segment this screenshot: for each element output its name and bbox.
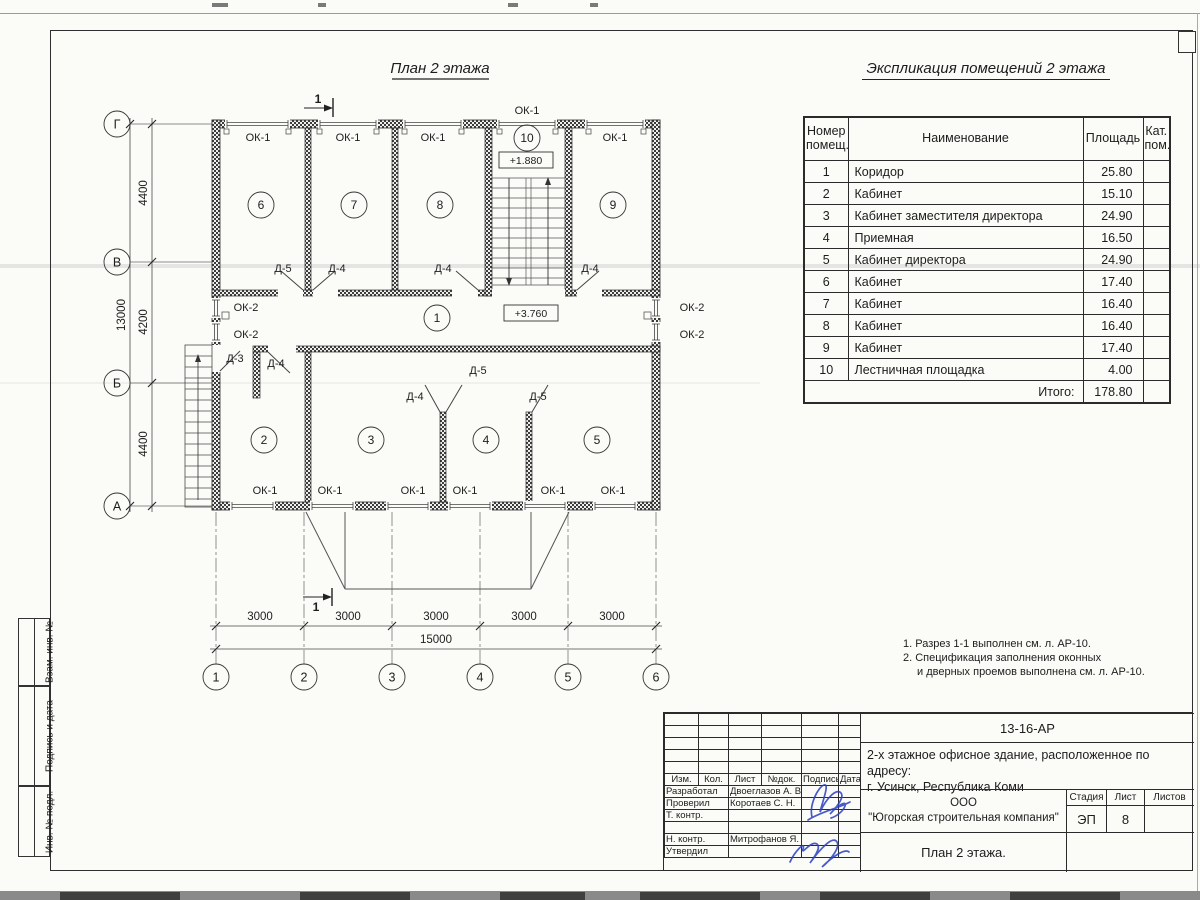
- cell-cat: [1143, 249, 1170, 271]
- cell-num: 4: [804, 227, 848, 249]
- room-number: 8: [437, 198, 444, 212]
- plan-label: ОК-1: [336, 132, 361, 144]
- note-line: 2. Спецификация заполнения оконных: [903, 651, 1145, 665]
- schedule-title-text: Экспликация помещений 2 этажа: [862, 60, 1109, 80]
- plan-label: ОК-1: [318, 485, 343, 497]
- room-number: 7: [351, 198, 358, 212]
- col-header-area: Площадь: [1083, 117, 1143, 161]
- signature-stroke: [790, 840, 849, 867]
- cell-name: Кабинет директора: [848, 249, 1083, 271]
- cell-area: 24.90: [1083, 249, 1143, 271]
- cell-name: Кабинет: [848, 183, 1083, 205]
- elevation-mark: +3.760: [515, 308, 548, 320]
- plan-label: ОК-1: [541, 485, 566, 497]
- scan-seg: [1010, 892, 1120, 900]
- col-header-number: Номер помещ.: [804, 117, 848, 161]
- floor-plan: План 2 этажа: [0, 0, 760, 700]
- cell-cat: [1143, 183, 1170, 205]
- room-number: 3: [368, 433, 375, 447]
- scan-seg: [820, 892, 930, 900]
- porch: [306, 512, 569, 589]
- stamp-inv: Инв. № подл.: [18, 786, 50, 857]
- dimension-label: 3000: [335, 611, 361, 623]
- table-row: 9Кабинет17.40: [804, 337, 1170, 359]
- plan-label: ОК-1: [421, 132, 446, 144]
- grid-col-label: 3: [389, 671, 396, 685]
- cell-num: 9: [804, 337, 848, 359]
- plan-label: Д-4: [328, 263, 345, 275]
- cell-cat: [1143, 205, 1170, 227]
- plan-label: ОК-1: [246, 132, 271, 144]
- room-number: 1: [434, 311, 441, 325]
- stamp-divider: [34, 787, 35, 856]
- external-stair: [185, 345, 212, 507]
- stamp-label-podpis: Подпись и дата: [45, 700, 56, 772]
- plan-label: Д-5: [274, 263, 291, 275]
- dimension-label: 15000: [420, 634, 452, 646]
- section-mark-label: 1: [313, 600, 320, 614]
- stairwell: [492, 177, 565, 286]
- cell-area: 16.40: [1083, 315, 1143, 337]
- cell-cat: [1143, 315, 1170, 337]
- cell-area: 4.00: [1083, 359, 1143, 381]
- room-schedule: Номер помещ. Наименование Площадь Кат. п…: [803, 116, 1171, 404]
- cell-name: Кабинет: [848, 271, 1083, 293]
- dimension-label: 3000: [599, 611, 625, 623]
- table-row: 6Кабинет17.40: [804, 271, 1170, 293]
- cell-area: 17.40: [1083, 271, 1143, 293]
- dimension-label: 3000: [247, 611, 273, 623]
- cell-area: 24.90: [1083, 205, 1143, 227]
- stamp-divider: [34, 687, 35, 785]
- plan-label: ОК-2: [680, 302, 705, 314]
- dimension-label: 4200: [138, 309, 150, 335]
- total-area: 178.80: [1083, 381, 1143, 404]
- cell-num: 8: [804, 315, 848, 337]
- plan-title: План 2 этажа: [390, 60, 489, 77]
- schedule-header-row: Номер помещ. Наименование Площадь Кат. п…: [804, 117, 1170, 161]
- dimension-label: 3000: [511, 611, 537, 623]
- grid-row-label: А: [113, 500, 122, 514]
- plan-label: Д-4: [406, 391, 423, 403]
- total-label: Итого:: [804, 381, 1083, 404]
- cell-cat: [1143, 227, 1170, 249]
- room-number: 4: [483, 433, 490, 447]
- scan-seg: [300, 892, 410, 900]
- scan-seg: [640, 892, 760, 900]
- stamp-divider: [34, 619, 35, 685]
- room-number: 6: [258, 198, 265, 212]
- cell-name: Кабинет: [848, 315, 1083, 337]
- cell-area: 25.80: [1083, 161, 1143, 183]
- cell-num: 1: [804, 161, 848, 183]
- plan-label: Д-4: [434, 263, 451, 275]
- cell-name: Приемная: [848, 227, 1083, 249]
- plan-label: Д-5: [529, 391, 546, 403]
- note-line: и дверных проемов выполнена см. л. АР-10…: [903, 665, 1145, 679]
- cell-name: Кабинет заместителя директора: [848, 205, 1083, 227]
- table-row: 10Лестничная площадка4.00: [804, 359, 1170, 381]
- grid-col-label: 1: [213, 671, 220, 685]
- plan-label: ОК-2: [234, 329, 259, 341]
- room-number: 10: [520, 131, 534, 145]
- cell-num: 5: [804, 249, 848, 271]
- note-line: 1. Разрез 1-1 выполнен см. л. АР-10.: [903, 637, 1145, 651]
- schedule-title: Экспликация помещений 2 этажа: [803, 60, 1169, 80]
- cell-cat: [1143, 337, 1170, 359]
- plan-label: ОК-1: [401, 485, 426, 497]
- signature-stroke: [808, 802, 850, 820]
- cell-num: 10: [804, 359, 848, 381]
- plan-label: ОК-2: [680, 329, 705, 341]
- plan-label: ОК-1: [601, 485, 626, 497]
- plan-label: ОК-2: [234, 302, 259, 314]
- grid-row-label: В: [113, 256, 121, 270]
- stamp-vzam: Взам. инв. №: [18, 618, 50, 686]
- signature-stroke: [811, 785, 845, 818]
- table-row: 5Кабинет директора24.90: [804, 249, 1170, 271]
- cell-num: 3: [804, 205, 848, 227]
- room-number: 5: [594, 433, 601, 447]
- table-row: 1Коридор25.80: [804, 161, 1170, 183]
- table-row: 3Кабинет заместителя директора24.90: [804, 205, 1170, 227]
- cell-name: Кабинет: [848, 293, 1083, 315]
- plan-label: Д-5: [469, 365, 486, 377]
- stamp-label-vzam: Взам. инв. №: [45, 621, 56, 683]
- col-header-cat: Кат. пом.: [1143, 117, 1170, 161]
- cell-area: 15.10: [1083, 183, 1143, 205]
- scan-seg: [500, 892, 585, 900]
- scan-seg: [60, 892, 180, 900]
- cell-num: 6: [804, 271, 848, 293]
- cell-name: Лестничная площадка: [848, 359, 1083, 381]
- grid-col-label: 2: [301, 671, 308, 685]
- cell-name: Кабинет: [848, 337, 1083, 359]
- elevation-mark: +1.880: [510, 155, 543, 167]
- table-row: 8Кабинет16.40: [804, 315, 1170, 337]
- cell-cat: [1143, 271, 1170, 293]
- dimension-label: 3000: [423, 611, 449, 623]
- table-row: 4Приемная16.50: [804, 227, 1170, 249]
- grid-col-label: 4: [477, 671, 484, 685]
- cell-area: 16.40: [1083, 293, 1143, 315]
- plan-label: ОК-1: [453, 485, 478, 497]
- plan-label: ОК-1: [603, 132, 628, 144]
- plan-label: ОК-1: [515, 105, 540, 117]
- cell-num: 7: [804, 293, 848, 315]
- grid-row-label: Г: [114, 118, 121, 132]
- plan-label: ОК-1: [253, 485, 278, 497]
- section-mark-label: 1: [315, 92, 322, 106]
- schedule-total-row: Итого: 178.80: [804, 381, 1170, 404]
- stamp-podpis: Подпись и дата: [18, 686, 50, 786]
- table-row: 2Кабинет15.10: [804, 183, 1170, 205]
- drawing-sheet: План 2 этажа: [0, 0, 1200, 900]
- dimension-label: 13000: [116, 299, 128, 331]
- cell-cat: [1143, 161, 1170, 183]
- plan-label: Д-4: [581, 263, 598, 275]
- stamp-label-inv: Инв. № подл.: [45, 790, 56, 852]
- title-block: Изм. Кол. Лист №док. Подпись Дата Разраб…: [663, 712, 1193, 871]
- col-header-name: Наименование: [848, 117, 1083, 161]
- cell-name: Коридор: [848, 161, 1083, 183]
- cell-cat: [1143, 359, 1170, 381]
- grid-col-label: 5: [565, 671, 572, 685]
- signatures: [664, 713, 1194, 872]
- plan-label: Д-3: [226, 353, 243, 365]
- scan-edge-right: [1197, 13, 1198, 891]
- room-number: 9: [610, 198, 617, 212]
- room-number: 2: [261, 433, 268, 447]
- notes: 1. Разрез 1-1 выполнен см. л. АР-10. 2. …: [903, 637, 1145, 679]
- dimension-label: 4400: [138, 431, 150, 457]
- dimension-label: 4400: [138, 180, 150, 206]
- cell-area: 16.50: [1083, 227, 1143, 249]
- format-box: [1178, 31, 1196, 53]
- cell-num: 2: [804, 183, 848, 205]
- grid-row-label: Б: [113, 377, 121, 391]
- cell-cat: [1143, 293, 1170, 315]
- total-cat-cell: [1143, 381, 1170, 404]
- cell-area: 17.40: [1083, 337, 1143, 359]
- table-row: 7Кабинет16.40: [804, 293, 1170, 315]
- plan-label: Д-4: [267, 358, 284, 370]
- grid-col-label: 6: [653, 671, 660, 685]
